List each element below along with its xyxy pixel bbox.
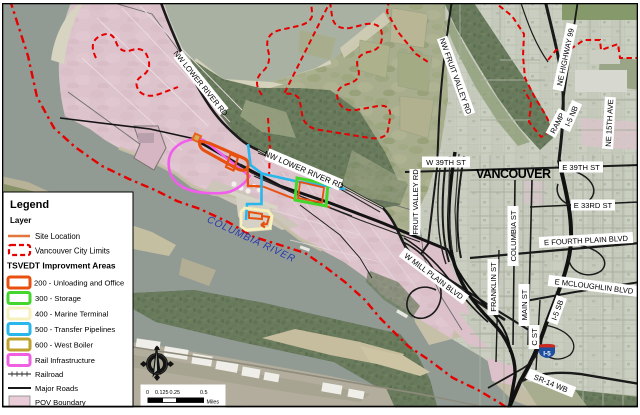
svg-text:300 - Storage: 300 - Storage (35, 294, 81, 303)
svg-text:W 39TH ST: W 39TH ST (426, 158, 466, 167)
svg-text:TSVEDT Improvment Areas: TSVEDT Improvment Areas (7, 261, 116, 271)
svg-text:0.125: 0.125 (155, 390, 169, 396)
svg-text:MAIN ST: MAIN ST (520, 289, 529, 320)
svg-text:Rail Infrastructure: Rail Infrastructure (35, 356, 95, 365)
svg-text:POV Boundary: POV Boundary (35, 398, 86, 407)
svg-text:Railroad: Railroad (35, 370, 63, 379)
svg-text:E 33RD ST: E 33RD ST (574, 201, 613, 210)
svg-text:I-5: I-5 (543, 351, 551, 358)
svg-text:Major Roads: Major Roads (35, 384, 78, 393)
svg-text:0.5: 0.5 (200, 390, 208, 396)
svg-text:FRUIT VALLEY RD: FRUIT VALLEY RD (411, 169, 420, 235)
svg-text:E 39TH ST: E 39TH ST (562, 163, 600, 172)
svg-text:400 - Marine Terminal: 400 - Marine Terminal (35, 310, 109, 319)
svg-text:600 - West Boiler: 600 - West Boiler (35, 341, 94, 350)
svg-text:Legend: Legend (10, 199, 49, 211)
svg-text:0: 0 (146, 390, 149, 396)
svg-text:0.25: 0.25 (170, 390, 181, 396)
svg-text:FRANKLIN ST: FRANKLIN ST (489, 262, 498, 312)
svg-text:200 - Unloading and Office: 200 - Unloading and Office (34, 279, 124, 288)
svg-text:VANCOUVER: VANCOUVER (476, 167, 551, 181)
svg-text:Layer: Layer (10, 216, 31, 225)
svg-text:C ST: C ST (530, 328, 539, 346)
svg-text:Miles: Miles (207, 400, 220, 406)
svg-text:500 - Transfer Pipelines: 500 - Transfer Pipelines (35, 325, 115, 334)
svg-text:COLUMBIA ST: COLUMBIA ST (509, 210, 518, 261)
svg-text:Vancouver City Limits: Vancouver City Limits (35, 247, 110, 256)
svg-text:Site Location: Site Location (35, 232, 80, 241)
